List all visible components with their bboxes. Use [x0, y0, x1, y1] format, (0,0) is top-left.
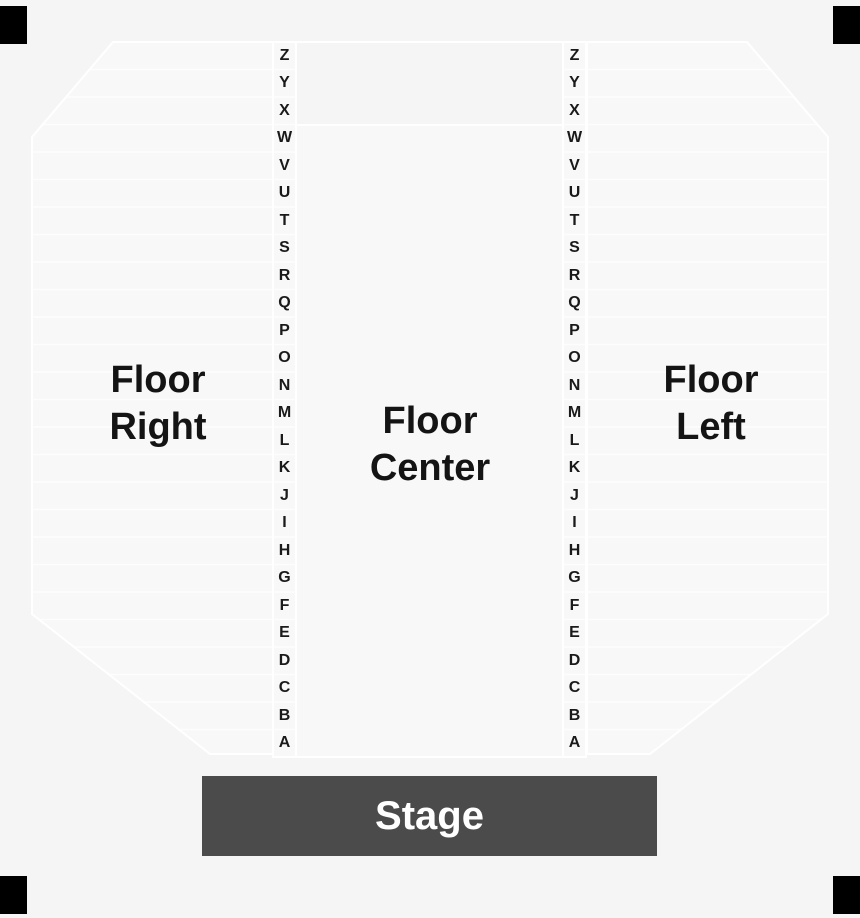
stage: Stage	[202, 776, 657, 856]
corner-notch-bottom-right	[833, 876, 860, 914]
corner-notch-top-right	[833, 6, 860, 44]
corner-notch-bottom-left	[0, 876, 27, 914]
stage-label: Stage	[375, 796, 484, 836]
section-floor-center-shape[interactable]	[296, 125, 563, 757]
corner-notch-top-left	[0, 6, 27, 44]
seating-chart: ZYXWVUTSRQPONMLKJIHGFEDCBA ZYXWVUTSRQPON…	[0, 0, 860, 918]
